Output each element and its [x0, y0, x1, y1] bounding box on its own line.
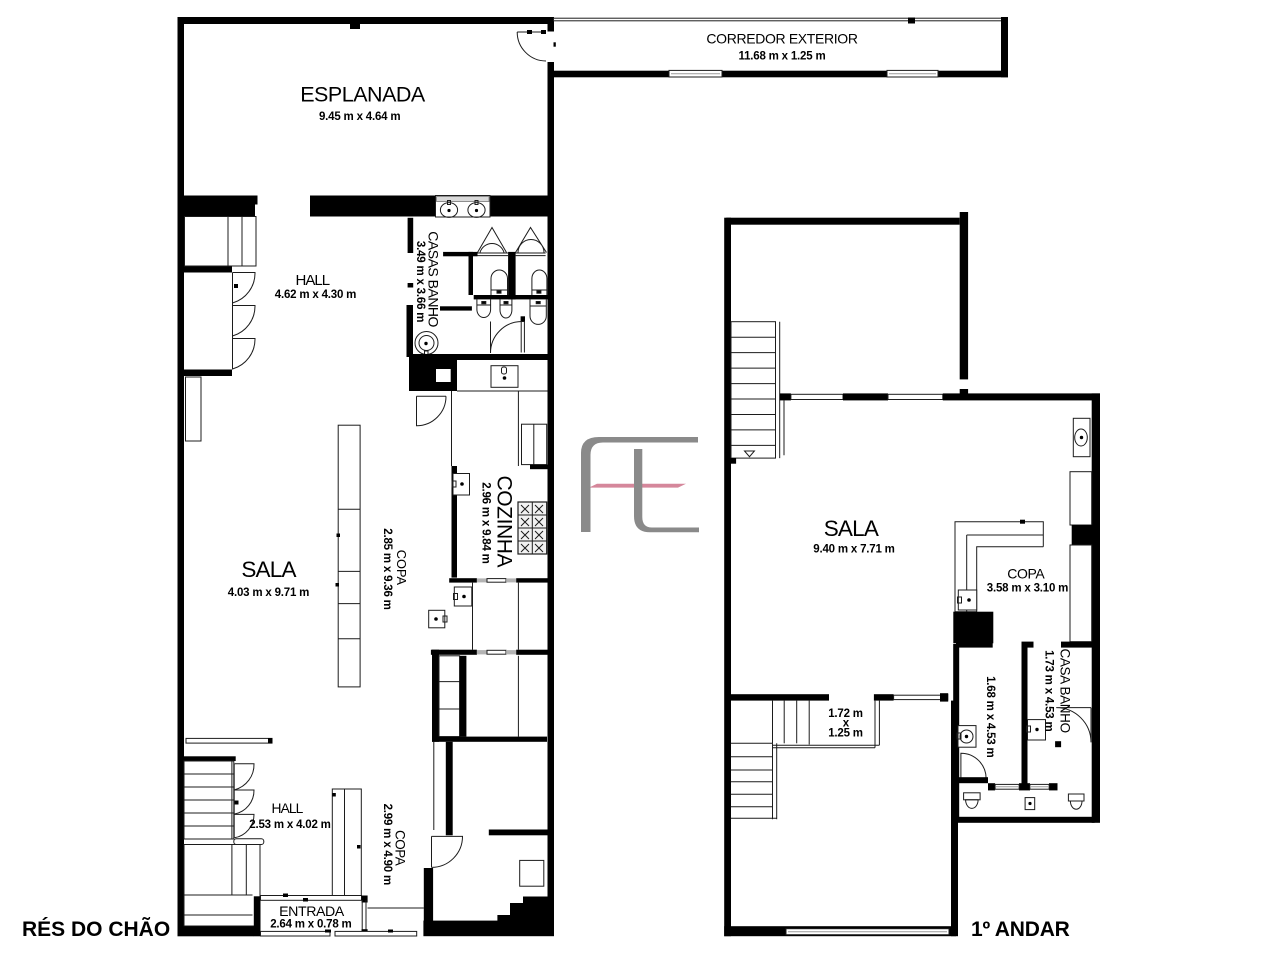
svg-text:CASA BANHO: CASA BANHO: [1057, 648, 1072, 732]
svg-text:COPA: COPA: [1007, 565, 1045, 581]
svg-text:4.03 m x 9.71 m: 4.03 m x 9.71 m: [228, 587, 309, 599]
svg-text:9.40 m x 7.71 m: 9.40 m x 7.71 m: [813, 544, 894, 556]
svg-text:3.49 m x 3.66 m: 3.49 m x 3.66 m: [414, 241, 426, 322]
svg-text:HALL: HALL: [272, 801, 304, 816]
svg-text:3.58 m x 3.10 m: 3.58 m x 3.10 m: [987, 583, 1068, 595]
svg-text:1.25 m: 1.25 m: [828, 728, 863, 740]
svg-text:CASAS BANHO: CASAS BANHO: [425, 231, 441, 327]
svg-text:1º ANDAR: 1º ANDAR: [971, 918, 1070, 941]
svg-text:RÉS DO CHÃO: RÉS DO CHÃO: [22, 918, 170, 941]
svg-text:1.73 m x 4.53 m: 1.73 m x 4.53 m: [1043, 650, 1055, 731]
svg-text:CORREDOR EXTERIOR: CORREDOR EXTERIOR: [706, 30, 857, 46]
svg-text:4.62 m x 4.30 m: 4.62 m x 4.30 m: [275, 289, 356, 301]
svg-text:1.68 m x 4.53 m: 1.68 m x 4.53 m: [984, 676, 996, 757]
svg-text:2.99 m x 4.90 m: 2.99 m x 4.90 m: [381, 804, 393, 885]
svg-text:COPA: COPA: [394, 550, 409, 586]
svg-text:SALA: SALA: [824, 516, 879, 541]
svg-text:COPA: COPA: [392, 830, 407, 866]
svg-text:ENTRADA: ENTRADA: [279, 904, 345, 920]
svg-text:HALL: HALL: [296, 272, 330, 289]
svg-text:2.85 m x 9.36 m: 2.85 m x 9.36 m: [381, 528, 393, 609]
svg-text:SALA: SALA: [241, 557, 296, 582]
svg-text:2.64 m x 0.78 m: 2.64 m x 0.78 m: [270, 919, 351, 931]
svg-text:2.53 m x 4.02 m: 2.53 m x 4.02 m: [249, 819, 330, 831]
svg-text:COZINHA: COZINHA: [493, 475, 516, 567]
svg-text:9.45 m x 4.64 m: 9.45 m x 4.64 m: [319, 111, 400, 123]
svg-text:11.68 m x 1.25 m: 11.68 m x 1.25 m: [739, 51, 826, 63]
svg-text:ESPLANADA: ESPLANADA: [300, 82, 426, 106]
svg-text:2.96 m x 9.84 m: 2.96 m x 9.84 m: [480, 482, 492, 563]
